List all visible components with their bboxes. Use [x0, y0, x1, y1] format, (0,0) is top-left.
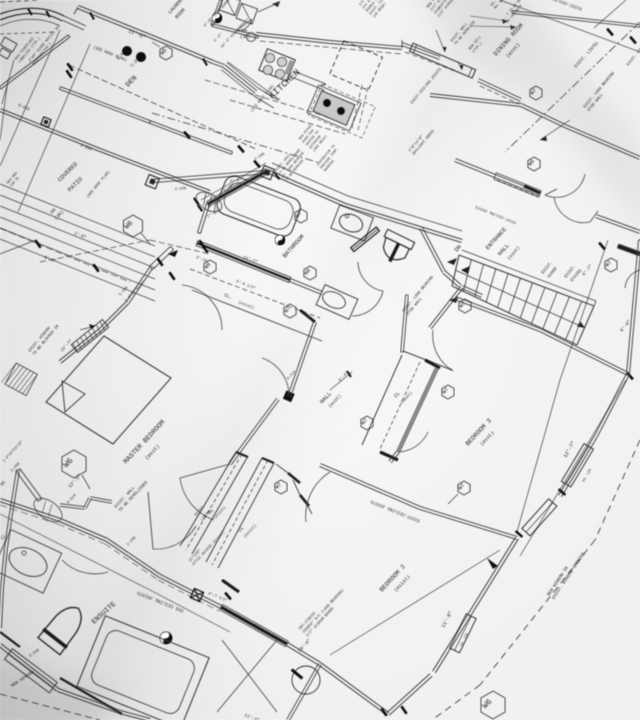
- svg-text:(3R): (3R): [240, 35, 250, 40]
- svg-text:4'-9": 4'-9": [230, 178, 242, 184]
- svg-text:DN: DN: [242, 30, 248, 34]
- svg-text:2-2X8: 2-2X8: [175, 187, 187, 192]
